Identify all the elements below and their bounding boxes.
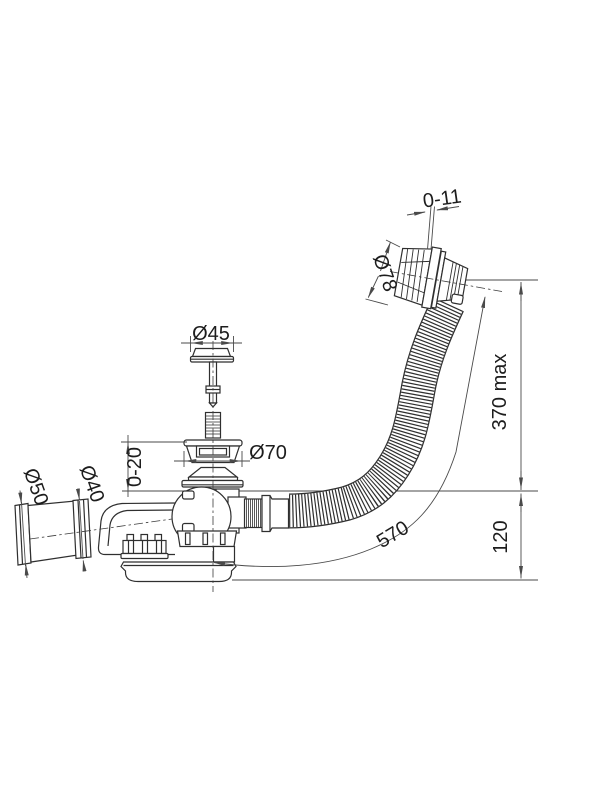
hose-nut [262, 496, 289, 532]
hose-thread [245, 499, 263, 528]
dim-outlet-sleeve-diameter: Ø50 [19, 465, 53, 508]
dim-plug-diameter: Ø45 [192, 323, 230, 345]
dim-overflow-travel: 0-11 [422, 185, 463, 212]
flexible-hose [289, 304, 448, 511]
plug [191, 349, 234, 439]
bath-waste-technical-drawing: 0-11 Ø78 Ø45 Ø70 0-20 Ø50 Ø40 570 370 ma… [0, 0, 600, 800]
dim-outlet-pipe-diameter: Ø40 [75, 462, 109, 505]
dim-flange-diameter: Ø70 [249, 442, 287, 464]
dim-hose-length: 570 [373, 517, 413, 553]
dim-overflow-height-max: 370 max [489, 354, 511, 431]
outlet-pipe-body [28, 501, 78, 562]
waste-flange [182, 440, 243, 487]
plug-cap [193, 349, 231, 357]
waste-trap [121, 487, 289, 582]
dim-trap-depth: 120 [490, 520, 512, 553]
overflow-fitting [393, 242, 471, 314]
dim-flange-height-adjust: 0-20 [124, 447, 146, 487]
